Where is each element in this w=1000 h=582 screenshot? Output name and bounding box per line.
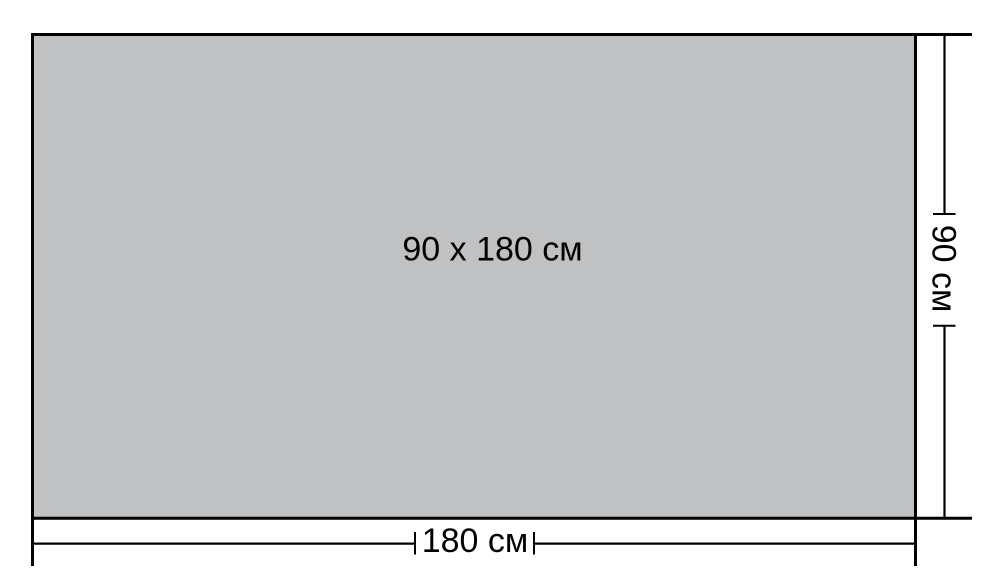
svg-text:90 см: 90 см (925, 225, 963, 313)
svg-text:90 x 180 см: 90 x 180 см (402, 231, 582, 269)
svg-text:180 см: 180 см (422, 522, 529, 560)
